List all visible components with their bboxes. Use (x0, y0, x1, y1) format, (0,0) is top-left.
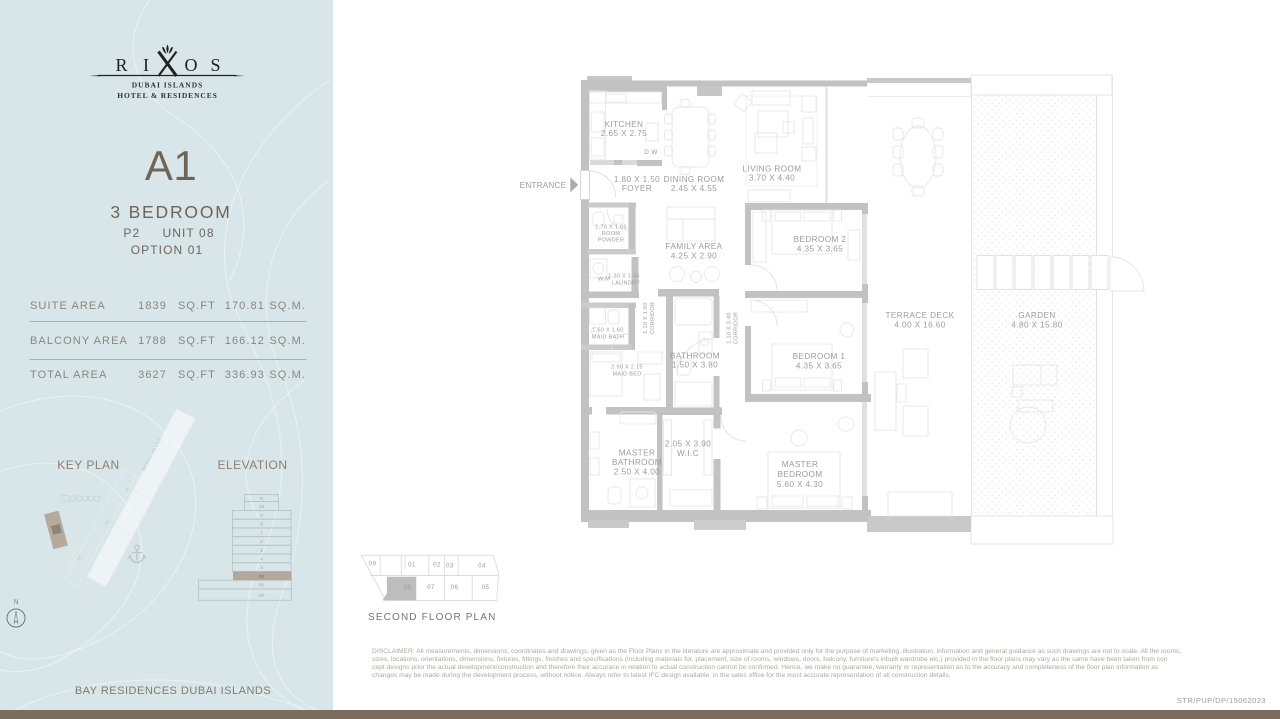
svg-text:GARDEN: GARDEN (1018, 311, 1055, 320)
svg-text:1.80 X 1.50: 1.80 X 1.50 (614, 175, 660, 184)
svg-text:4.00 X 16.60: 4.00 X 16.60 (894, 321, 945, 330)
svg-text:06: 06 (451, 584, 459, 591)
svg-text:BATHROOM: BATHROOM (612, 458, 662, 467)
svg-text:ENTRANCE: ENTRANCE (520, 181, 567, 190)
svg-text:TERRACE DECK: TERRACE DECK (886, 311, 955, 320)
svg-text:2.90 X 2.15: 2.90 X 2.15 (611, 365, 642, 371)
svg-text:1.30 X 1.45: 1.30 X 1.45 (608, 274, 639, 280)
svg-text:CORRIDOR: CORRIDOR (734, 312, 740, 344)
svg-text:LAUNDRY: LAUNDRY (612, 281, 640, 287)
svg-text:07: 07 (427, 584, 435, 591)
svg-text:2.50 X 4.00: 2.50 X 4.00 (614, 468, 660, 477)
svg-text:MASTER: MASTER (782, 460, 819, 469)
svg-text:4.80 X 15.80: 4.80 X 15.80 (1011, 321, 1062, 330)
svg-text:1.50 X 3.80: 1.50 X 3.80 (672, 361, 718, 370)
svg-text:09: 09 (369, 561, 377, 568)
svg-text:DINING ROOM: DINING ROOM (664, 175, 725, 184)
svg-text:02: 02 (433, 562, 441, 569)
svg-text:1.10 X 1.60: 1.10 X 1.60 (643, 302, 649, 333)
svg-text:1.50 X 1.60: 1.50 X 1.60 (592, 328, 623, 334)
svg-text:KITCHEN: KITCHEN (605, 120, 644, 129)
svg-text:4.25 X 2.90: 4.25 X 2.90 (671, 252, 717, 261)
svg-text:01: 01 (408, 562, 416, 569)
svg-text:ROOM: ROOM (602, 231, 620, 237)
svg-text:W.I.C: W.I.C (677, 449, 699, 458)
svg-text:3.70 X 4.40: 3.70 X 4.40 (749, 174, 795, 183)
svg-text:MASTER: MASTER (619, 449, 656, 458)
svg-text:04: 04 (478, 563, 486, 570)
svg-text:5.60 X 4.30: 5.60 X 4.30 (777, 480, 823, 489)
svg-text:2.45 X 4.55: 2.45 X 4.55 (671, 184, 717, 193)
svg-text:2.65 X 2.75: 2.65 X 2.75 (601, 129, 647, 138)
svg-text:BEDROOM 2: BEDROOM 2 (794, 235, 847, 244)
svg-text:BEDROOM 1: BEDROOM 1 (793, 352, 846, 361)
svg-text:POWDER: POWDER (598, 238, 625, 244)
svg-text:LIVING ROOM: LIVING ROOM (743, 165, 802, 174)
svg-text:1.70 X 1.65: 1.70 X 1.65 (595, 225, 626, 231)
svg-text:4.35 X 3.65: 4.35 X 3.65 (797, 245, 843, 254)
svg-text:1.10 X 3.40: 1.10 X 3.40 (727, 312, 733, 343)
svg-text:08: 08 (404, 584, 412, 591)
svg-text:BEDROOM: BEDROOM (777, 470, 822, 479)
svg-text:MAID BED: MAID BED (613, 372, 642, 378)
svg-text:4.35 X 3.65: 4.35 X 3.65 (796, 362, 842, 371)
svg-text:2.05 X 3.90: 2.05 X 3.90 (665, 440, 711, 449)
svg-text:SECOND FLOOR PLAN: SECOND FLOOR PLAN (368, 612, 496, 623)
svg-text:MAID BATH: MAID BATH (592, 335, 624, 341)
svg-text:BATHROOM: BATHROOM (670, 352, 720, 361)
svg-text:FOYER: FOYER (622, 184, 652, 193)
svg-text:FAMILY AREA: FAMILY AREA (666, 242, 723, 251)
svg-text:D.W: D.W (644, 149, 658, 156)
svg-text:03: 03 (446, 563, 454, 570)
svg-text:CORRIDOR: CORRIDOR (650, 302, 656, 334)
svg-text:05: 05 (482, 584, 490, 591)
